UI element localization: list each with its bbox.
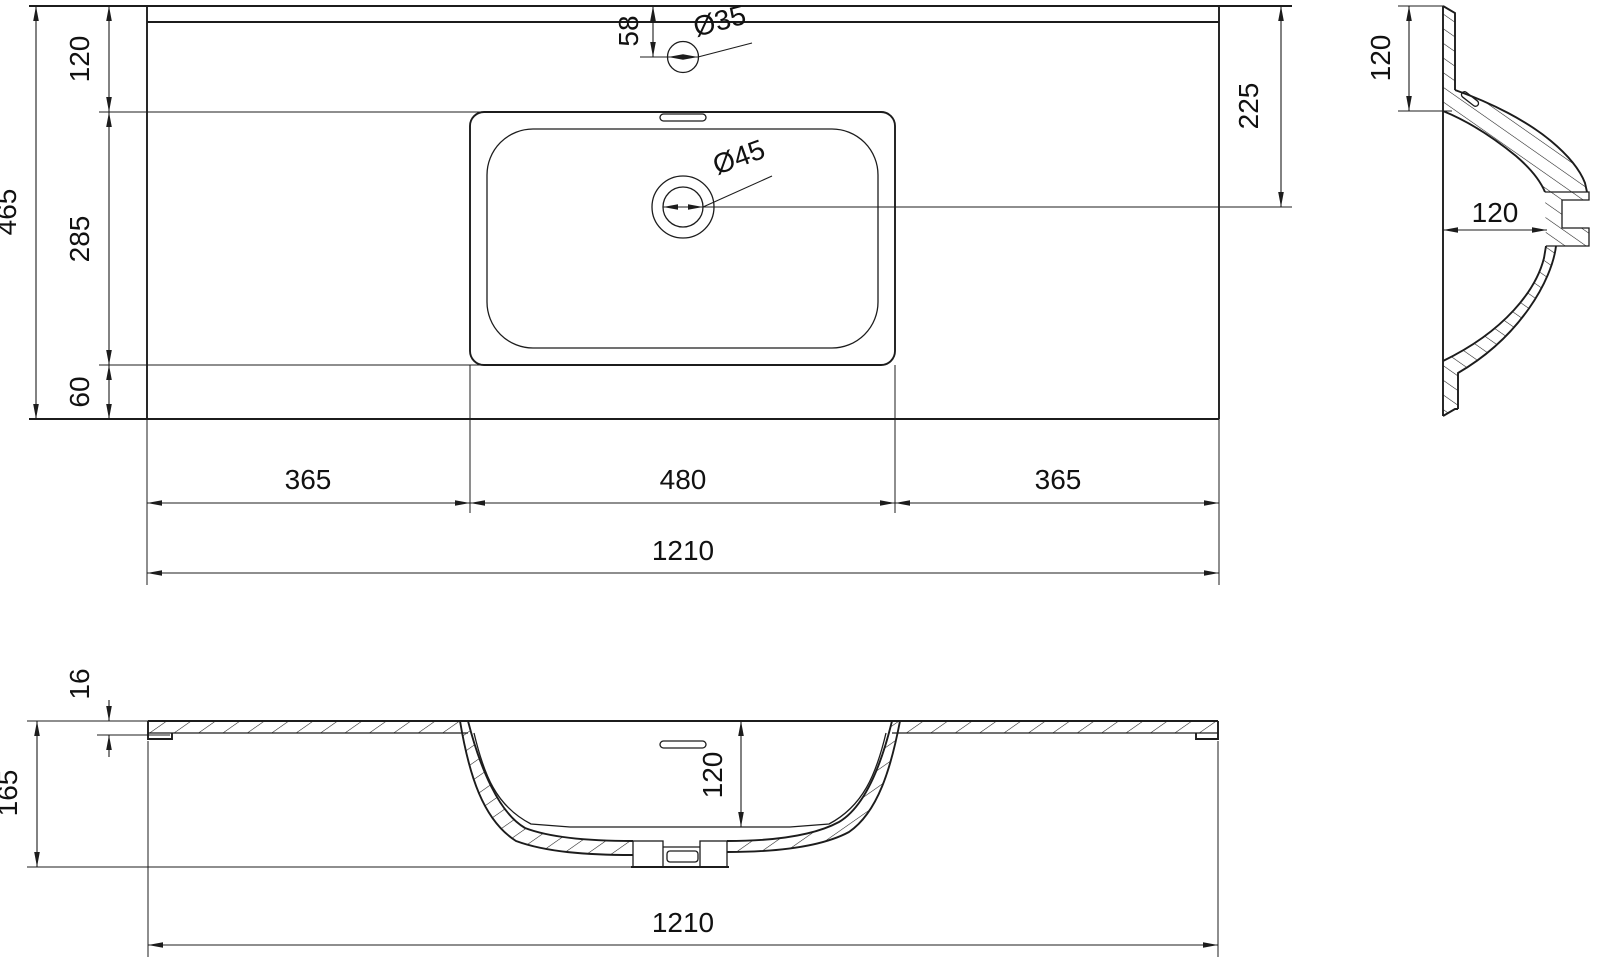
front-slab-right-hatch bbox=[892, 721, 1218, 733]
dim-1210-plan: 1210 bbox=[652, 535, 714, 566]
drain-leader bbox=[703, 176, 772, 207]
trap-block-right bbox=[700, 841, 727, 867]
front-bowl-inner-right bbox=[727, 721, 892, 841]
dim-465: 465 bbox=[0, 189, 22, 236]
dim-16: 16 bbox=[64, 668, 95, 699]
technical-drawing-washbasin: Ø35 Ø45 58 120 285 60 465 225 bbox=[0, 0, 1600, 967]
dim-60: 60 bbox=[64, 376, 95, 407]
front-slab-left-hatch bbox=[148, 721, 468, 733]
plan-view: Ø35 Ø45 58 120 285 60 465 225 bbox=[0, 0, 1292, 585]
dim-365-right: 365 bbox=[1035, 464, 1082, 495]
front-section-view: 16 165 120 1210 bbox=[0, 668, 1218, 957]
dim-58: 58 bbox=[613, 15, 644, 46]
dim-285: 285 bbox=[64, 216, 95, 263]
dim-365-left: 365 bbox=[285, 464, 332, 495]
dim-side-bowl-120: 120 bbox=[1472, 197, 1519, 228]
dim-165: 165 bbox=[0, 770, 23, 817]
trap-block-left bbox=[633, 841, 663, 867]
dim-225: 225 bbox=[1233, 83, 1264, 130]
overflow-slot-front bbox=[660, 741, 706, 748]
dim-120-back: 120 bbox=[64, 36, 95, 83]
dim-480: 480 bbox=[660, 464, 707, 495]
dim-front-120: 120 bbox=[697, 752, 728, 799]
dim-side-120: 120 bbox=[1365, 35, 1396, 82]
trap-drain-slot bbox=[667, 851, 698, 862]
drain-dia-label: Ø45 bbox=[709, 133, 769, 180]
overflow-slot-plan bbox=[660, 114, 706, 121]
dim-1210-front: 1210 bbox=[652, 907, 714, 938]
faucet-leader bbox=[698, 43, 752, 57]
side-section-view: 120 120 bbox=[1365, 6, 1589, 416]
drawing-canvas: Ø35 Ø45 58 120 285 60 465 225 bbox=[0, 0, 1600, 967]
front-bowl-inner-left bbox=[468, 721, 633, 841]
